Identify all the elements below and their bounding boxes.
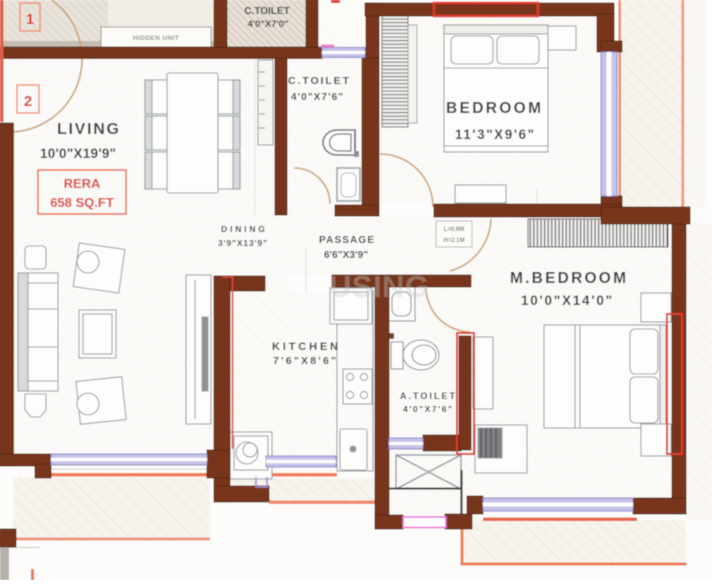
svg-text:1: 1 [26,11,34,28]
svg-text:C.TOILET: C.TOILET [244,6,289,17]
svg-text:11'3"X9'6": 11'3"X9'6" [455,127,534,142]
svg-text:M.BEDROOM: M.BEDROOM [510,270,626,287]
svg-text:7'6"X8'6": 7'6"X8'6" [273,355,336,367]
svg-text:4'0"X7'0": 4'0"X7'0" [248,19,289,30]
svg-text:10'0"X19'9": 10'0"X19'9" [40,146,116,161]
svg-text:4'0"X7'6": 4'0"X7'6" [291,92,343,103]
svg-text:PASSAGE: PASSAGE [319,235,374,246]
svg-text:3'9"X13'9": 3'9"X13'9" [218,238,267,248]
svg-text:HIDDEN UNIT: HIDDEN UNIT [133,35,179,42]
svg-text:6'6"X3'9": 6'6"X3'9" [324,250,368,261]
svg-text:L=0.9M: L=0.9M [444,227,465,233]
svg-text:LIVING: LIVING [57,121,119,138]
svg-text:4'0"X7'6": 4'0"X7'6" [403,404,452,414]
svg-text:10'0"X14'0": 10'0"X14'0" [521,293,612,308]
svg-text:2: 2 [24,93,32,110]
svg-text:RERA: RERA [64,176,101,191]
svg-text:H=2.1M: H=2.1M [443,238,464,244]
svg-text:USING: USING [329,269,429,304]
svg-text:658 SQ.FT: 658 SQ.FT [50,195,114,210]
